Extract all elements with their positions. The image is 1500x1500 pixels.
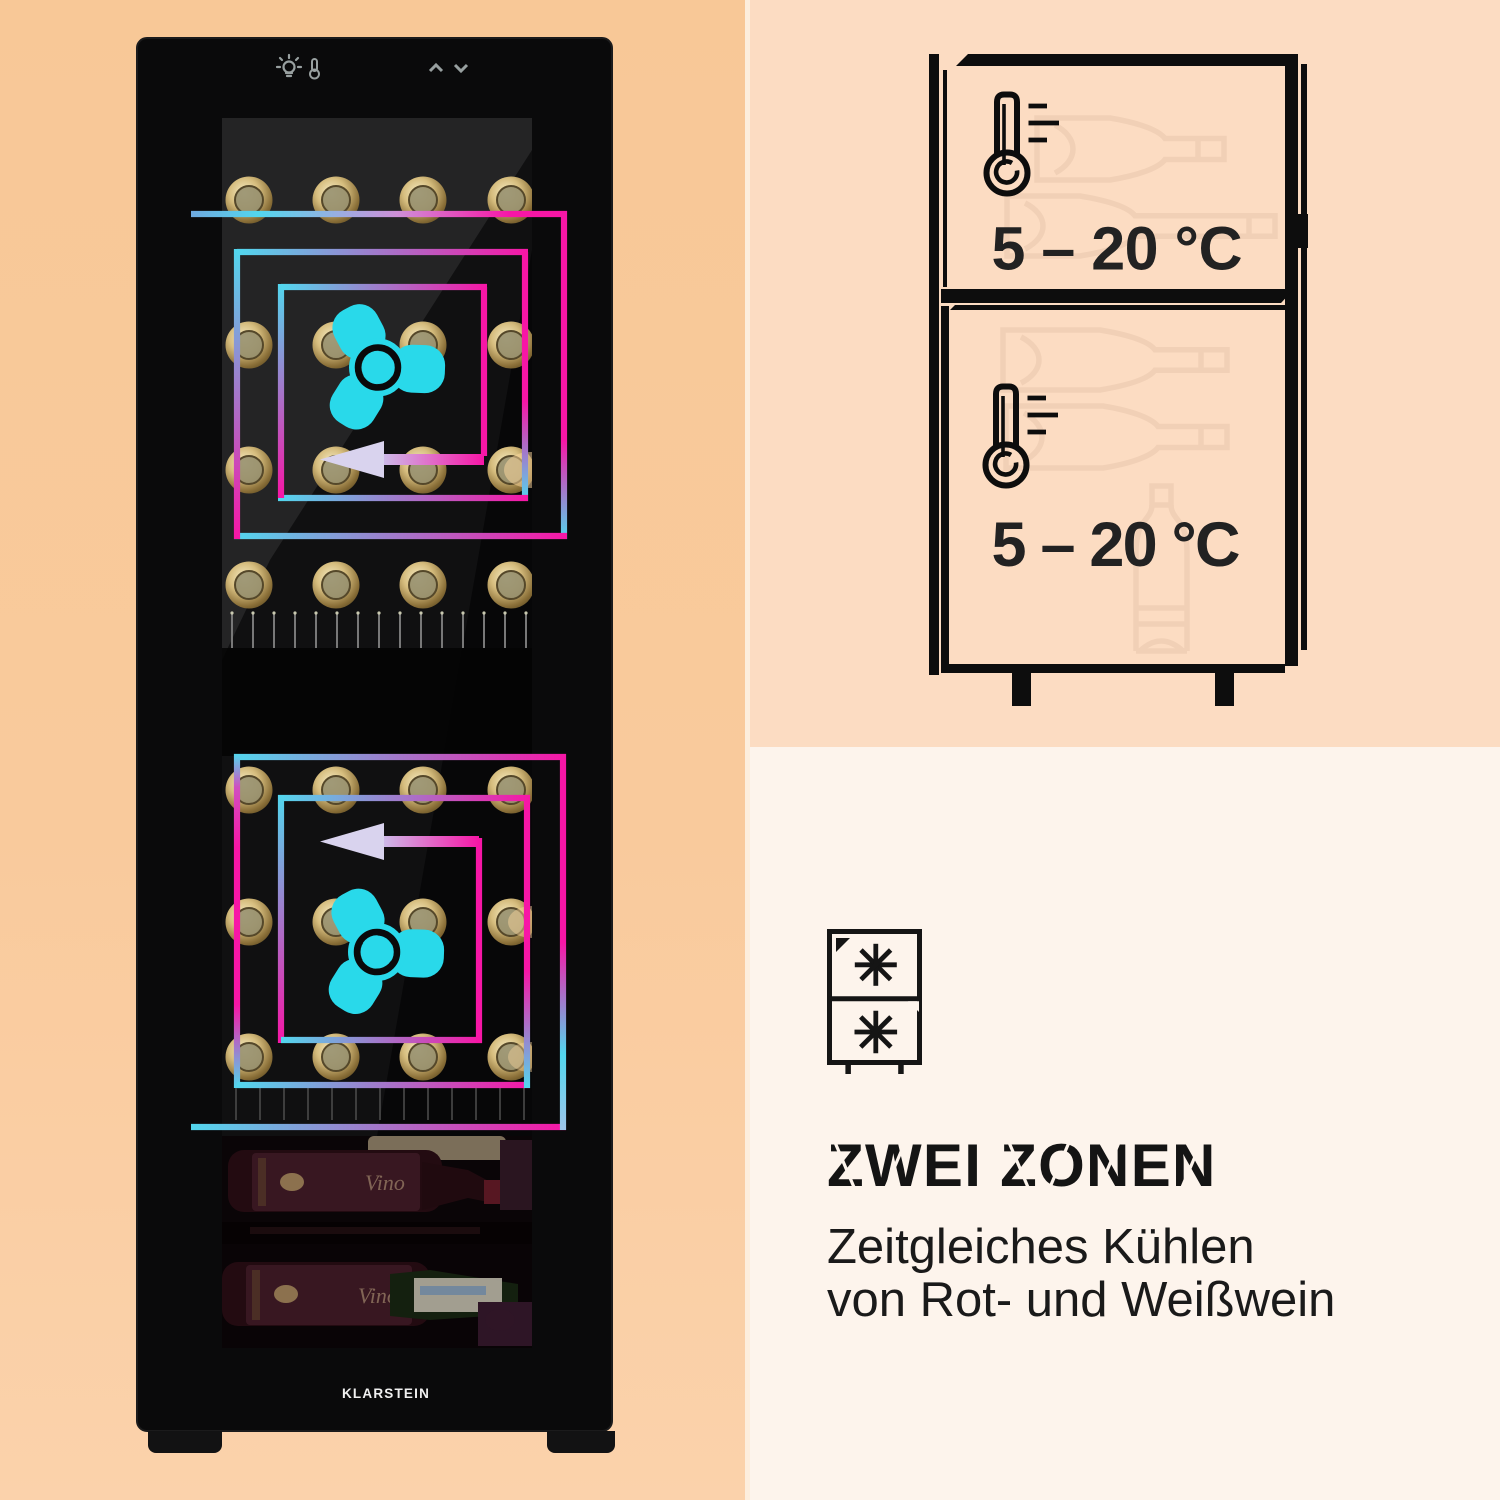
svg-text:5 – 20 °C: 5 – 20 °C (992, 215, 1243, 283)
svg-text:5 – 20 °C: 5 – 20 °C (992, 510, 1239, 580)
svg-text:Vino: Vino (365, 1170, 405, 1195)
svg-text:KLARSTEIN: KLARSTEIN (342, 1386, 430, 1401)
